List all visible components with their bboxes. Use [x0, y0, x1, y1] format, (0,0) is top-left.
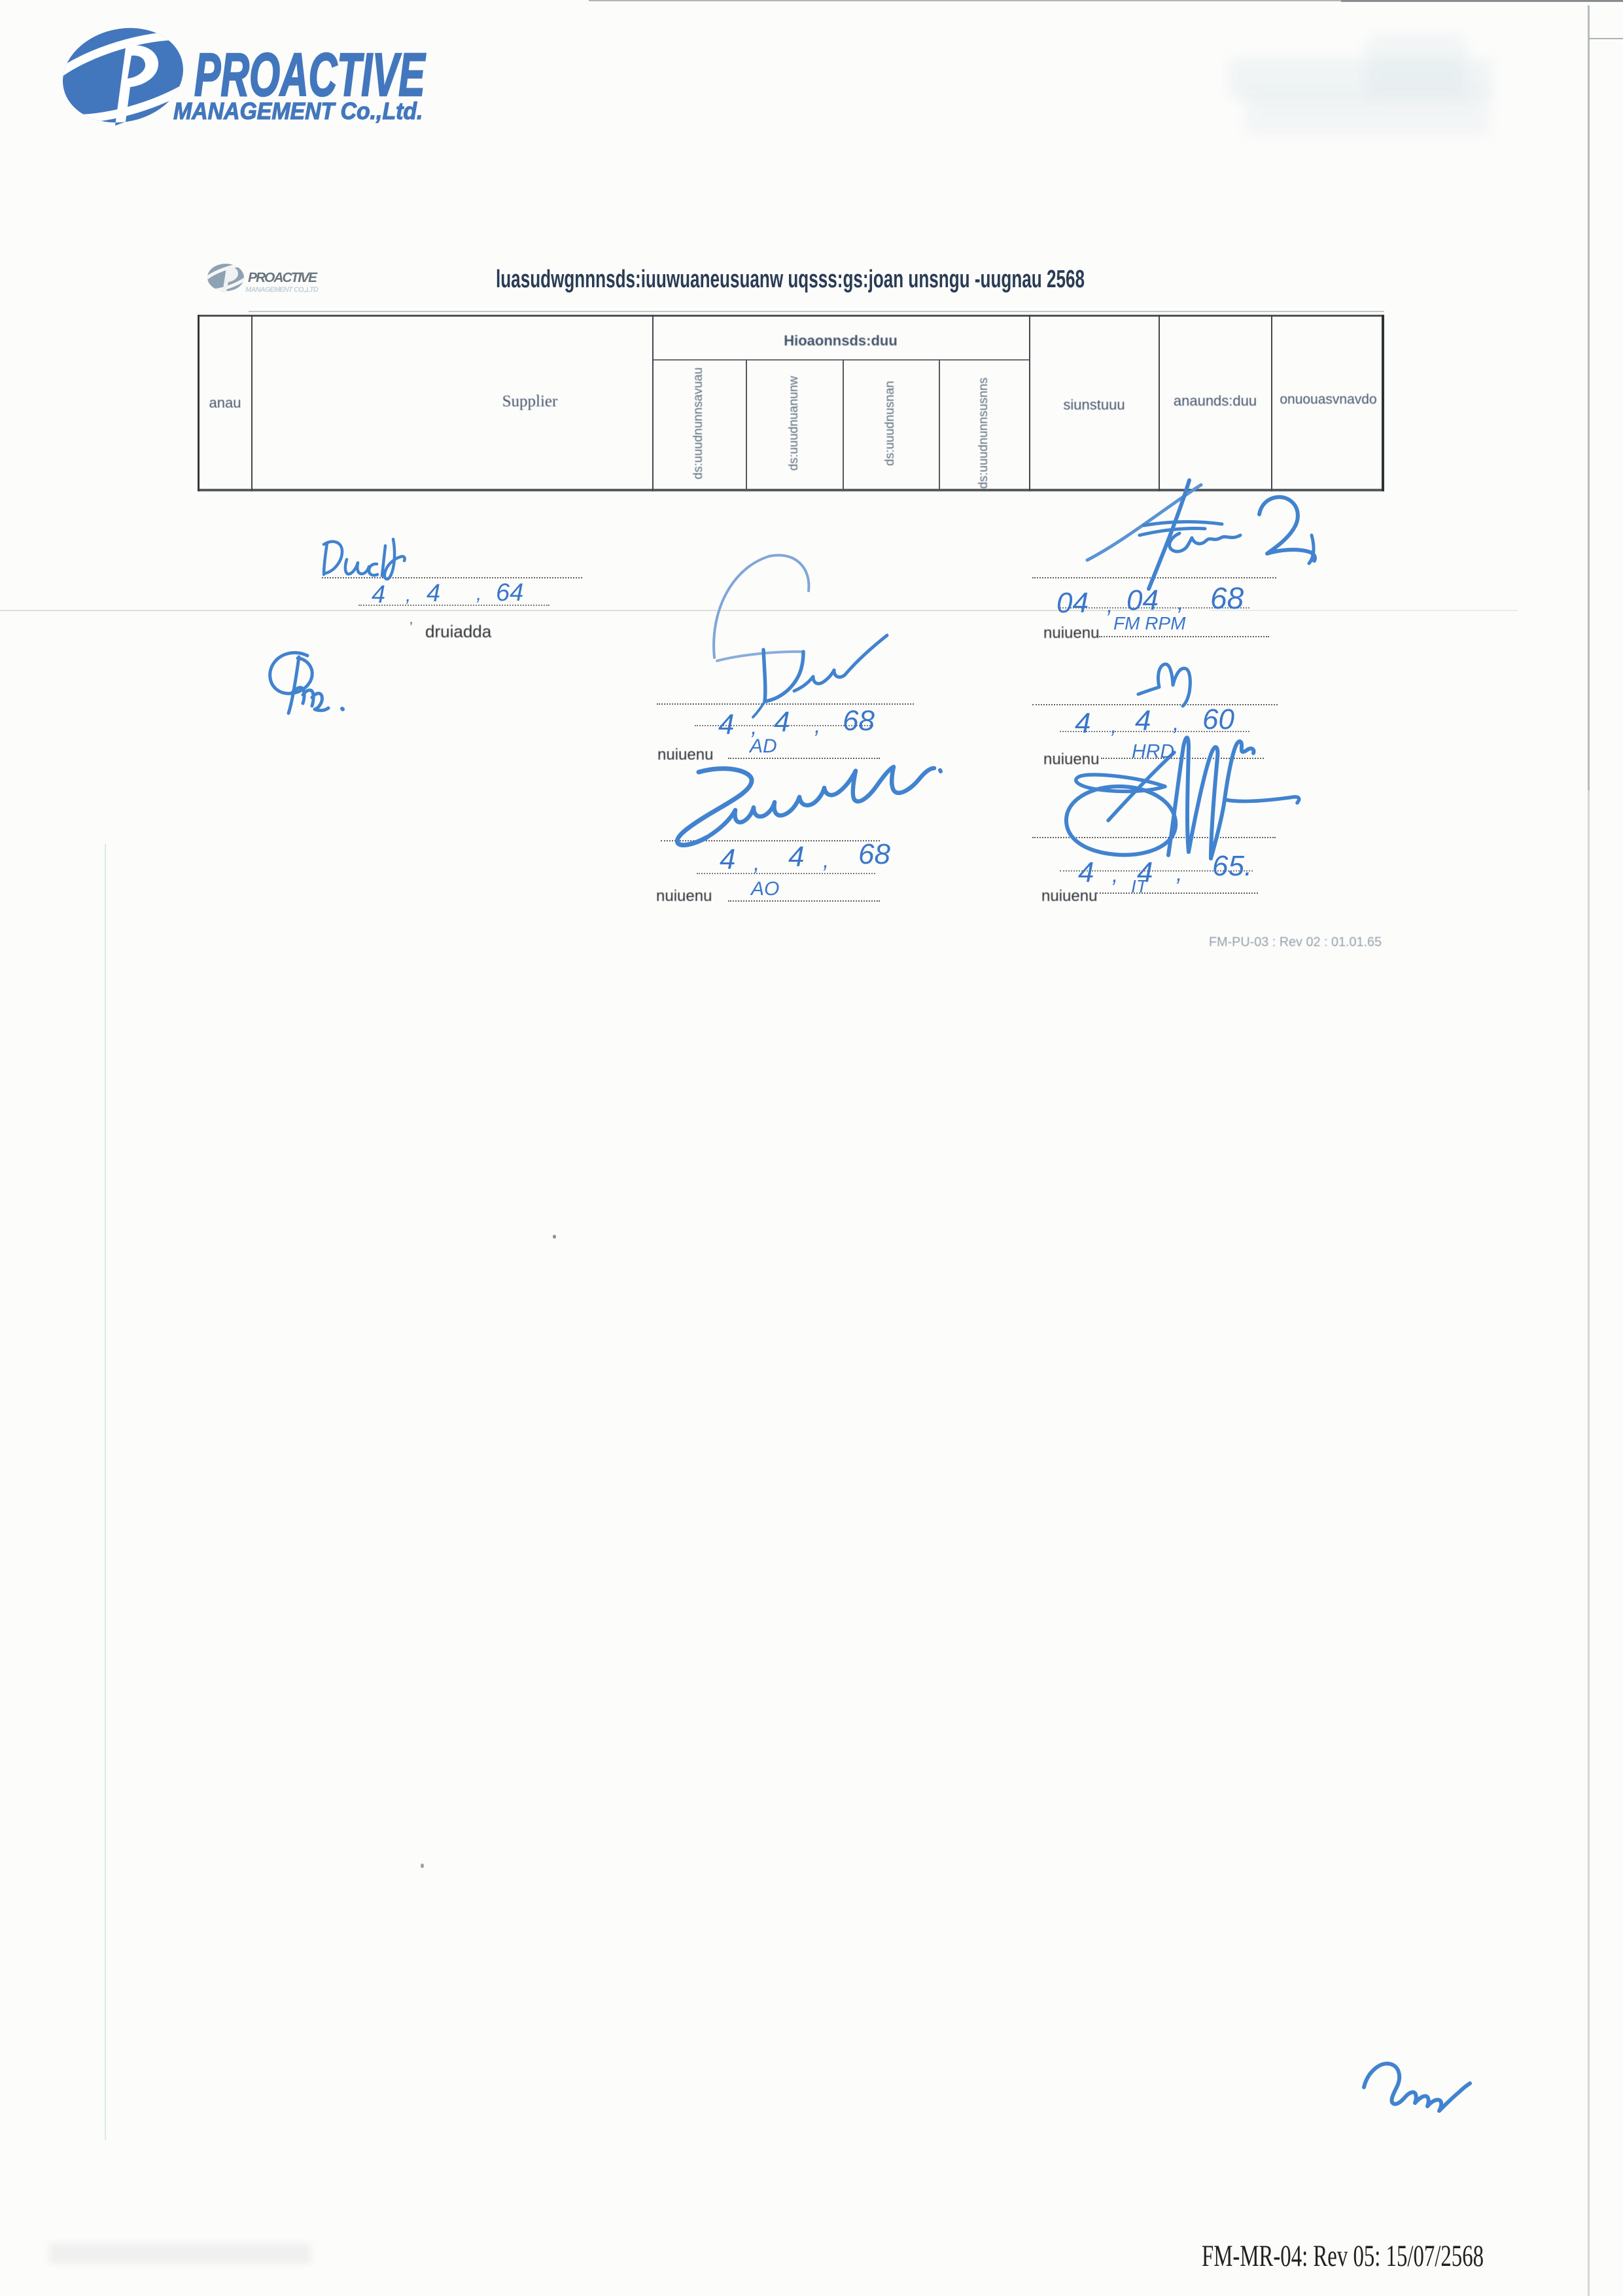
- svg-text:04: 04: [1056, 587, 1089, 619]
- svg-text:AD: AD: [748, 735, 777, 757]
- svg-text:,: ,: [1178, 590, 1183, 615]
- svg-text:4: 4: [372, 581, 385, 609]
- svg-text:,: ,: [1111, 713, 1117, 738]
- svg-text:FM RPM: FM RPM: [1113, 613, 1186, 633]
- svg-text:,: ,: [1173, 711, 1179, 735]
- svg-text:,: ,: [1176, 861, 1182, 886]
- svg-text:64: 64: [496, 579, 523, 607]
- svg-text:,: ,: [754, 851, 759, 875]
- svg-text:68: 68: [858, 838, 890, 870]
- svg-text:HRD: HRD: [1132, 741, 1174, 762]
- svg-text:4: 4: [720, 843, 735, 875]
- svg-text:68: 68: [843, 705, 875, 737]
- svg-text:,: ,: [814, 713, 820, 738]
- svg-text:65.: 65.: [1212, 850, 1252, 882]
- svg-text:,: ,: [406, 584, 411, 606]
- svg-text:60: 60: [1202, 703, 1234, 735]
- svg-text:4: 4: [1078, 857, 1094, 889]
- svg-text:04: 04: [1126, 584, 1159, 616]
- svg-text:,: ,: [1112, 862, 1118, 887]
- svg-text:4: 4: [774, 706, 790, 738]
- svg-text:68: 68: [1210, 581, 1244, 615]
- svg-text:,: ,: [823, 848, 829, 873]
- svg-text:,: ,: [476, 583, 481, 605]
- svg-text:4: 4: [427, 580, 440, 607]
- svg-text:4: 4: [1075, 707, 1091, 739]
- svg-text:4: 4: [788, 841, 804, 873]
- svg-text:4: 4: [718, 709, 734, 741]
- svg-text:AO: AO: [750, 878, 779, 900]
- svg-text:IT: IT: [1131, 876, 1149, 896]
- svg-text:4: 4: [1135, 705, 1151, 737]
- svg-text:,: ,: [1107, 593, 1113, 618]
